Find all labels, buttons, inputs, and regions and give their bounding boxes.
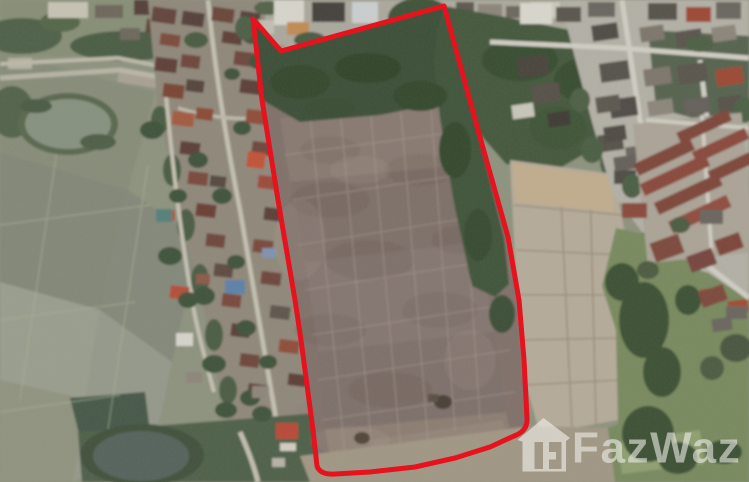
svg-text:FazWaz: FazWaz	[572, 424, 741, 473]
